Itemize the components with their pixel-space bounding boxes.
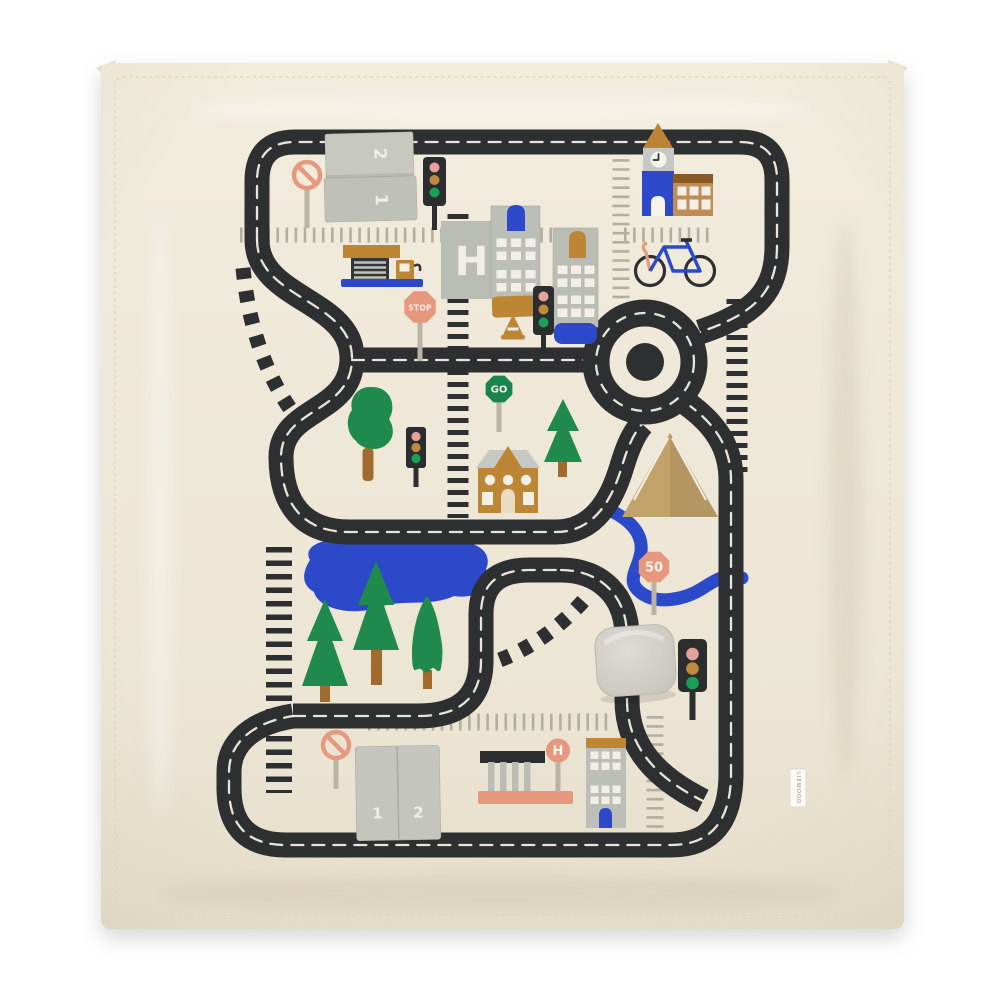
pocket-number: 1 — [370, 194, 390, 206]
house — [476, 446, 540, 513]
bus-stop-label: H — [553, 744, 564, 759]
pillow-pocket — [594, 623, 678, 705]
top-pocket: 2 1 — [323, 132, 417, 222]
go-sign-label: GO — [491, 385, 508, 396]
pocket-number: 1 — [372, 804, 383, 822]
stop-sign-label: STOP — [408, 304, 432, 313]
product-photo: 2 1 H — [0, 0, 1000, 1000]
brown-building — [673, 174, 713, 216]
tall-building-ochre-arch — [553, 228, 598, 344]
play-blanket-scene: 2 1 H — [0, 0, 1000, 1000]
bottom-building — [586, 738, 626, 828]
speed-limit-label: 50 — [645, 561, 663, 576]
brand-tag: LIEWOOD — [790, 769, 806, 807]
pocket-number: 2 — [413, 804, 424, 822]
helipad-letter: H — [455, 239, 488, 285]
brand-tag-label: LIEWOOD — [795, 772, 801, 804]
roundabout-center-dot — [626, 343, 664, 381]
tall-building-blue-arch — [491, 205, 540, 318]
pocket-number: 2 — [369, 148, 389, 160]
bottom-pocket: 1 2 — [355, 745, 441, 840]
